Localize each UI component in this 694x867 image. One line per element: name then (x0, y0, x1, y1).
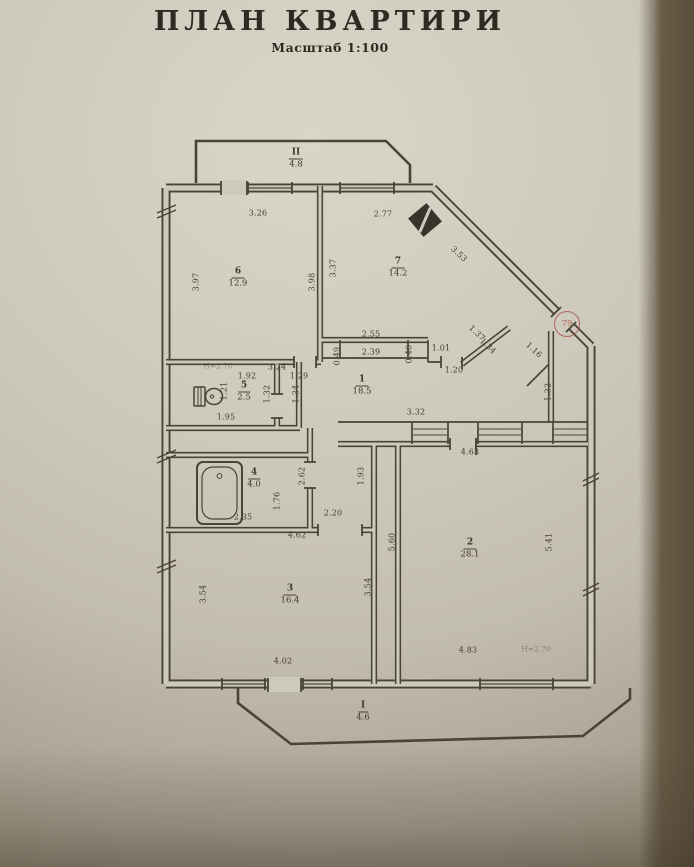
dimension-label: 2.20 (324, 509, 343, 518)
room-area: 4.6 (356, 713, 370, 723)
interior-walls (166, 186, 588, 684)
room-area: 12.9 (229, 279, 248, 289)
height-note: Н=2.70 (203, 362, 233, 371)
dimension-label: 2.62 (298, 467, 307, 486)
dimension-label: 3.54 (364, 578, 373, 597)
dimension-label: 3.97 (192, 273, 201, 292)
balcony-bottom-outline (238, 688, 630, 744)
dimension-label: 1.29 (290, 372, 309, 381)
room-area: 28.1 (461, 550, 480, 560)
room-number: 5 (238, 382, 250, 393)
room-number: 2 (464, 539, 476, 550)
dimension-label: 0.49 (333, 347, 342, 366)
room-label: 118.5 (353, 376, 372, 397)
dimension-label: 2.77 (374, 210, 393, 219)
dimension-label: 4.02 (274, 657, 293, 666)
room-label: II4.8 (289, 149, 303, 170)
apartment-plan-photo: ПЛАН КВАРТИРИ Масштаб 1:100 (0, 0, 694, 867)
dimension-label: 3.98 (308, 273, 317, 292)
balcony-door-gap-bottom (268, 677, 301, 692)
dimension-label: 3.32 (407, 408, 426, 417)
room-label: 228.1 (461, 539, 480, 560)
dimension-label: 1.01 (432, 344, 451, 353)
dimension-label: 3.24 (268, 363, 287, 372)
dimension-label: 1.20 (445, 366, 464, 375)
entrance-stamp: 79 (554, 311, 580, 337)
dimension-label: 3.54 (199, 585, 208, 604)
room-number: 4 (248, 469, 260, 480)
dimension-label: 1.32 (263, 385, 272, 404)
room-number: 7 (392, 258, 404, 269)
wall-break-ticks (157, 205, 599, 596)
room-area: 14.2 (389, 269, 408, 279)
room-label: 714.2 (389, 258, 408, 279)
dimension-label: 2.39 (362, 348, 381, 357)
floor-plan: II4.8612.9714.252.5118.544.0316.4228.1I4… (0, 0, 694, 867)
room-area: 2.5 (237, 393, 251, 403)
dimension-label: 4.63 (461, 448, 480, 457)
dimension-label: 0.40 (405, 345, 414, 364)
dimension-label: 2.35 (234, 513, 253, 522)
room-number: II (289, 149, 303, 160)
dimension-label: 1.21 (220, 382, 229, 401)
room-area: 16.4 (281, 596, 300, 606)
dimension-label: 4.83 (459, 646, 478, 655)
vent-shaft-icon (408, 203, 442, 237)
room-area: 4.8 (289, 160, 303, 170)
dimension-label: 4.62 (288, 531, 307, 540)
dimension-label: 1.92 (238, 372, 257, 381)
room-label: 44.0 (247, 469, 261, 490)
dimension-label: 1.93 (357, 467, 366, 486)
dimension-label: 3.26 (249, 209, 268, 218)
dimension-label: 1.34 (292, 385, 301, 404)
height-note: Н=2.70 (521, 645, 551, 654)
room-label: I4.6 (356, 702, 370, 723)
balcony-door-gap-top (221, 180, 247, 195)
dimension-label: 3.37 (329, 259, 338, 278)
dimension-label: 1.76 (273, 492, 282, 511)
room-label: 612.9 (229, 268, 248, 289)
room-area: 18.5 (353, 387, 372, 397)
toilet-icon (194, 387, 223, 406)
room-number: 3 (284, 585, 296, 596)
dimension-label: 1.95 (217, 413, 236, 422)
room-label: 52.5 (237, 382, 251, 403)
room-number: 1 (356, 376, 368, 387)
room-number: I (358, 702, 368, 713)
floor-plan-drawing (0, 0, 694, 867)
room-area: 4.0 (247, 480, 261, 490)
dimension-label: 5.60 (388, 533, 397, 552)
dimension-label: 5.41 (545, 533, 554, 552)
room-label: 316.4 (281, 585, 300, 606)
room-number: 6 (232, 268, 244, 279)
entrance-stamp-number: 79 (562, 319, 573, 329)
closet-shelf-lines (413, 429, 587, 435)
dimension-label: 1.32 (544, 383, 553, 402)
dimension-label: 2.55 (362, 330, 381, 339)
exterior-walls (166, 188, 591, 684)
